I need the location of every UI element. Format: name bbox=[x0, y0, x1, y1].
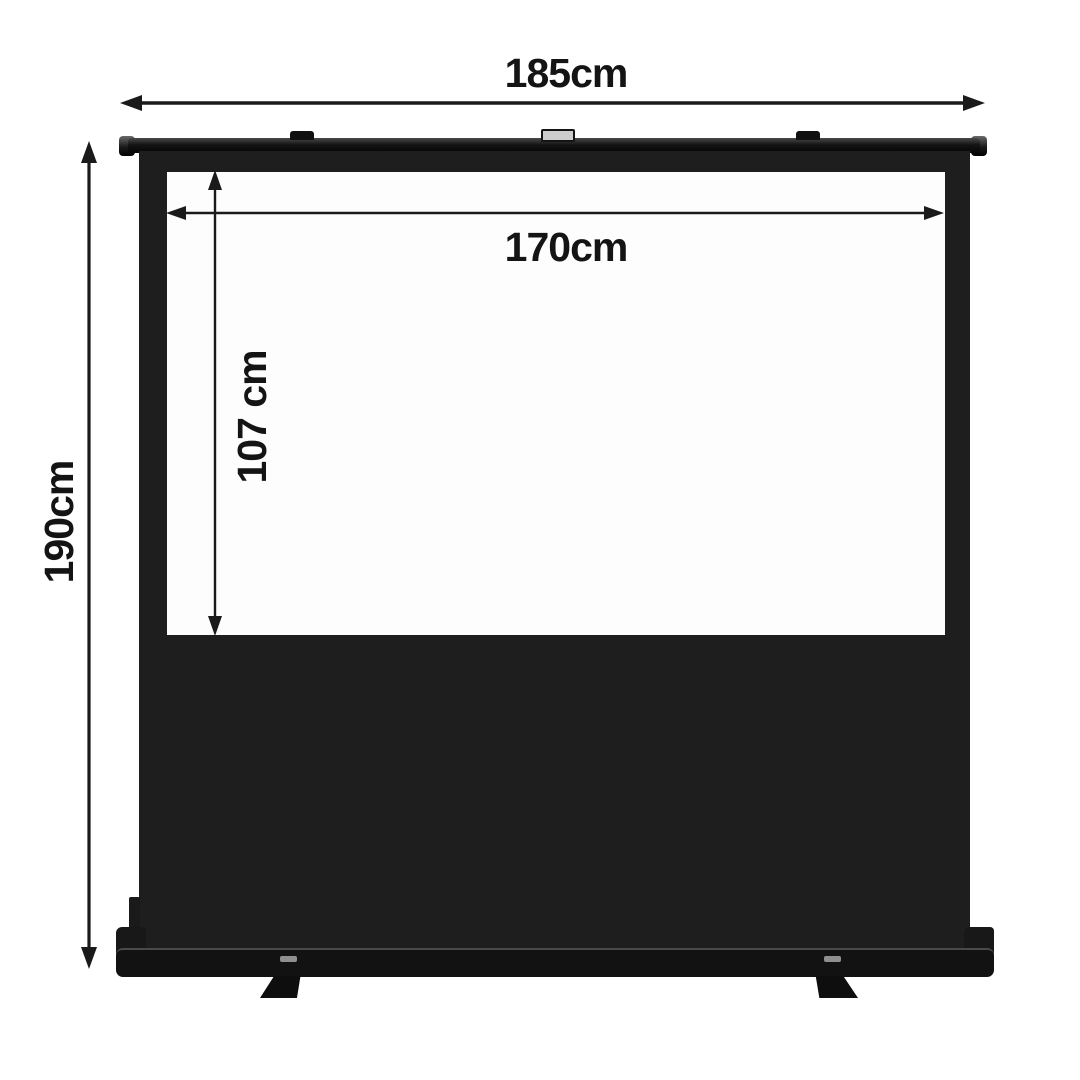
viewing-width-arrow bbox=[166, 206, 944, 220]
viewing-height-arrow bbox=[208, 170, 222, 636]
viewing-width-label: 170cm bbox=[366, 224, 766, 270]
overall-width-arrow bbox=[120, 95, 985, 111]
total-height-label: 190cm bbox=[36, 342, 82, 702]
overall-height-arrow bbox=[81, 141, 97, 969]
total-width-label: 185cm bbox=[366, 50, 766, 96]
viewing-height-label: 107 cm bbox=[229, 237, 275, 597]
dimension-arrows bbox=[0, 0, 1080, 1080]
dimension-diagram: 185cm 170cm 107 cm 190cm bbox=[0, 0, 1080, 1080]
